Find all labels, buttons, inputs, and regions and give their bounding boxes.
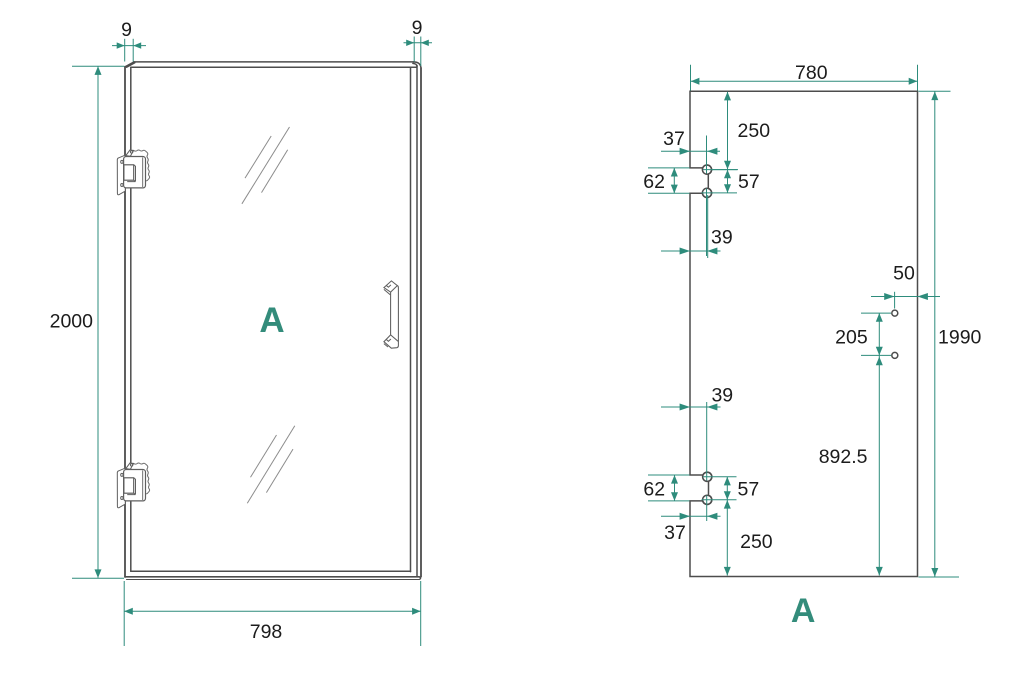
svg-text:9: 9 bbox=[121, 19, 132, 41]
svg-text:62: 62 bbox=[643, 479, 665, 501]
svg-text:250: 250 bbox=[738, 120, 771, 142]
svg-text:57: 57 bbox=[738, 479, 760, 501]
svg-text:9: 9 bbox=[412, 17, 423, 39]
svg-text:39: 39 bbox=[711, 227, 733, 249]
svg-text:A: A bbox=[791, 592, 816, 630]
svg-text:57: 57 bbox=[738, 171, 760, 193]
svg-text:798: 798 bbox=[250, 621, 283, 643]
svg-text:62: 62 bbox=[643, 171, 665, 193]
svg-text:1990: 1990 bbox=[938, 327, 982, 349]
svg-text:892.5: 892.5 bbox=[819, 446, 868, 468]
svg-text:37: 37 bbox=[664, 522, 686, 544]
svg-text:2000: 2000 bbox=[50, 310, 94, 332]
svg-text:39: 39 bbox=[711, 385, 733, 407]
svg-text:37: 37 bbox=[663, 128, 685, 150]
svg-text:250: 250 bbox=[740, 531, 773, 553]
svg-text:205: 205 bbox=[835, 327, 868, 349]
svg-text:A: A bbox=[259, 301, 284, 340]
svg-text:780: 780 bbox=[795, 62, 828, 84]
svg-text:50: 50 bbox=[893, 262, 915, 284]
